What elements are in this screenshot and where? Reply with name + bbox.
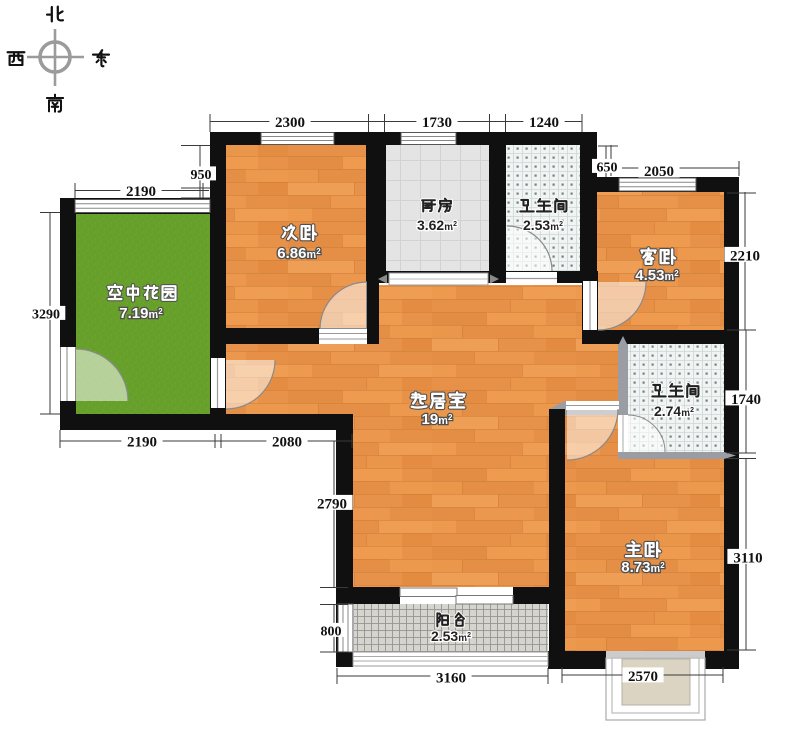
svg-text:2790: 2790 xyxy=(317,496,347,512)
svg-text:2300: 2300 xyxy=(275,115,305,131)
svg-text:2080: 2080 xyxy=(272,434,302,450)
svg-text:1240: 1240 xyxy=(529,115,559,131)
svg-text:1740: 1740 xyxy=(731,392,761,408)
svg-text:2570: 2570 xyxy=(628,669,658,685)
svg-text:1730: 1730 xyxy=(422,115,452,131)
svg-text:2050: 2050 xyxy=(644,164,674,180)
svg-text:650: 650 xyxy=(597,161,618,176)
svg-text:3290: 3290 xyxy=(32,308,60,323)
svg-text:3160: 3160 xyxy=(436,670,466,686)
svg-text:2190: 2190 xyxy=(127,434,157,450)
svg-text:800: 800 xyxy=(321,625,342,640)
svg-text:2190: 2190 xyxy=(126,184,156,200)
svg-text:3110: 3110 xyxy=(733,550,762,566)
svg-text:950: 950 xyxy=(191,168,212,183)
svg-text:2210: 2210 xyxy=(730,248,760,264)
